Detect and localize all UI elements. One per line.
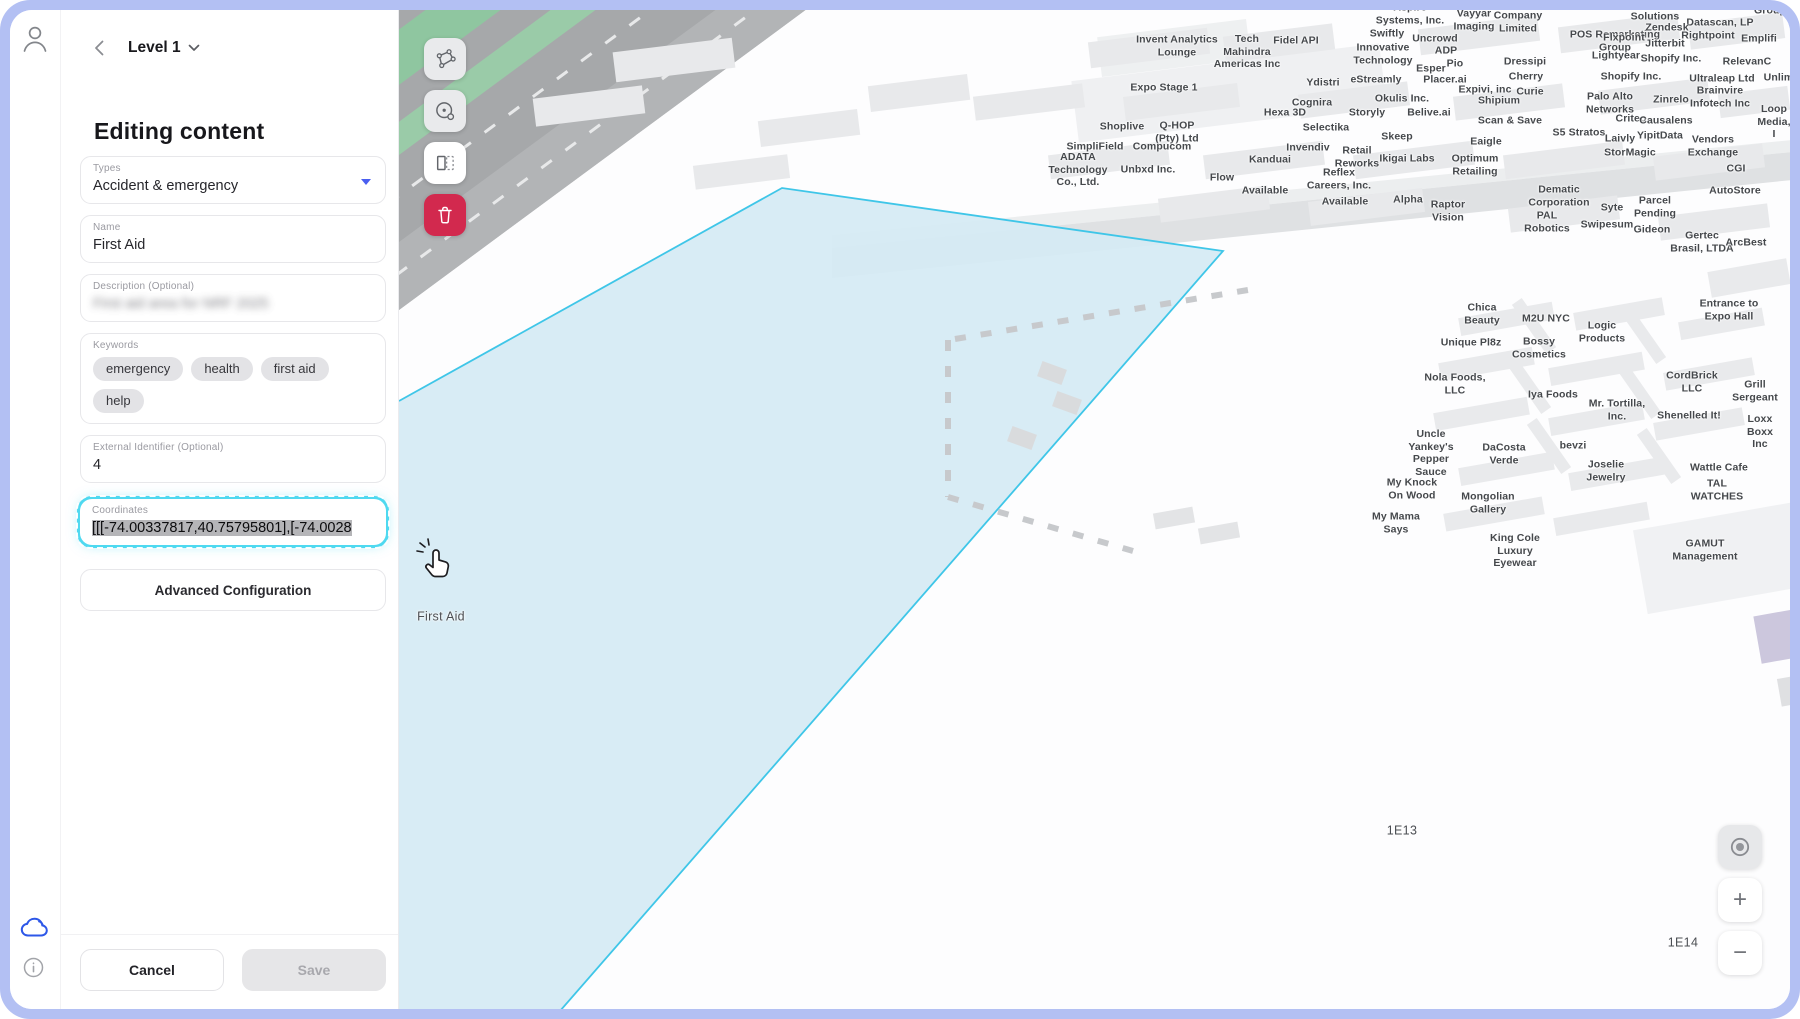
description-value-blurred: First aid area for NRF 2025 — [93, 295, 373, 313]
external-id-label: External Identifier (Optional) — [93, 442, 373, 453]
map-toolbar — [424, 38, 466, 236]
panel-header: Level 1 — [80, 36, 386, 60]
cancel-button[interactable]: Cancel — [80, 949, 224, 991]
page-title: Editing content — [94, 118, 386, 145]
external-id-value: 4 — [93, 456, 373, 474]
coordinates-value-selected: [[[-74.00337817,40.75795801],[-74.0028 — [92, 520, 352, 536]
types-field[interactable]: Types Accident & emergency — [80, 156, 386, 204]
circle-tool-button[interactable] — [424, 90, 466, 132]
types-value: Accident & emergency — [93, 177, 373, 195]
level-label: Level 1 — [128, 39, 181, 57]
keyword-chip[interactable]: health — [191, 357, 252, 381]
external-id-field[interactable]: External Identifier (Optional) 4 — [80, 435, 386, 483]
coordinates-field[interactable]: Coordinates [[[-74.00337817,40.75795801]… — [80, 499, 386, 545]
keywords-field[interactable]: Keywords emergencyhealthfirst aidhelp — [80, 333, 386, 424]
description-field[interactable]: Description (Optional) First aid area fo… — [80, 274, 386, 322]
types-label: Types — [93, 163, 373, 174]
keyword-chip[interactable]: first aid — [261, 357, 329, 381]
selected-area-polygon — [399, 188, 1223, 1009]
map-controls: + − — [1718, 825, 1762, 975]
coordinates-label: Coordinates — [92, 505, 374, 516]
cloud-icon[interactable] — [20, 916, 50, 943]
polygon-tool-button[interactable] — [424, 38, 466, 80]
map-decoration — [399, 10, 1790, 1009]
description-label: Description (Optional) — [93, 281, 373, 292]
save-button[interactable]: Save — [242, 949, 386, 991]
back-button[interactable] — [94, 36, 120, 60]
keywords-chip-list: emergencyhealthfirst aidhelp — [93, 357, 373, 415]
name-field[interactable]: Name First Aid — [80, 215, 386, 263]
avatar-icon[interactable] — [21, 24, 49, 59]
zoom-out-button[interactable]: − — [1718, 931, 1762, 975]
advanced-configuration-button[interactable]: Advanced Configuration — [80, 569, 386, 611]
split-tool-button[interactable] — [424, 142, 466, 184]
keyword-chip[interactable]: emergency — [93, 357, 183, 381]
window-frame: Level 1 Editing content Types Accident &… — [0, 0, 1800, 1019]
delete-tool-button[interactable] — [424, 194, 466, 236]
name-label: Name — [93, 222, 373, 233]
left-rail — [10, 10, 61, 1009]
target-icon — [1729, 836, 1751, 858]
dropdown-caret-icon — [361, 179, 371, 185]
editing-panel: Level 1 Editing content Types Accident &… — [61, 10, 399, 1009]
keywords-label: Keywords — [93, 340, 373, 351]
locate-button[interactable] — [1718, 825, 1762, 869]
keyword-chip[interactable]: help — [93, 389, 144, 413]
name-value: First Aid — [93, 236, 373, 254]
chevron-down-icon — [188, 44, 200, 52]
zoom-in-button[interactable]: + — [1718, 878, 1762, 922]
info-icon[interactable] — [23, 957, 44, 983]
map-canvas[interactable]: First Aid1E131E14Expo Stage 1Invent Anal… — [399, 10, 1790, 1009]
level-selector[interactable]: Level 1 — [128, 39, 200, 57]
panel-footer: Cancel Save — [61, 934, 398, 1009]
